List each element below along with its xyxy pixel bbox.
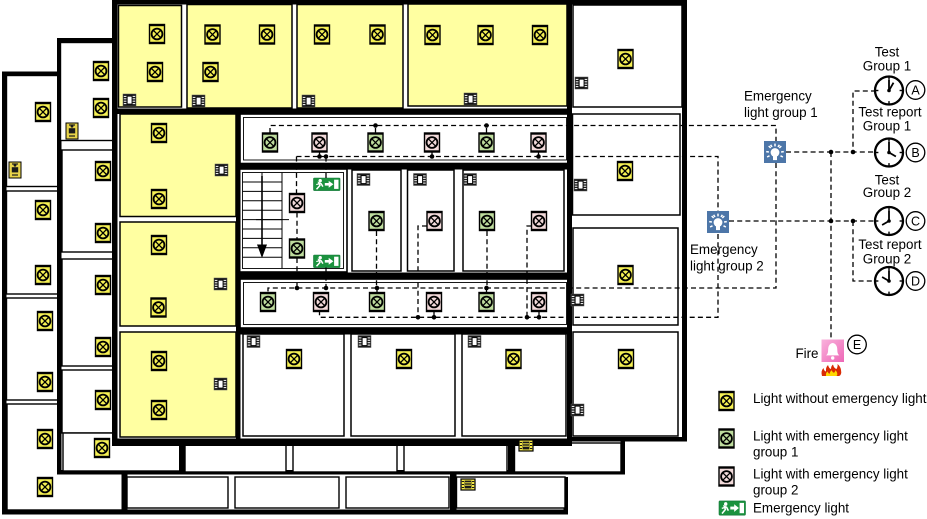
svg-text:Emergency light: Emergency light xyxy=(753,501,849,516)
svg-text:A: A xyxy=(911,84,920,98)
svg-text:Test: Test xyxy=(875,45,900,60)
svg-text:Test report: Test report xyxy=(858,237,922,252)
svg-text:C: C xyxy=(911,215,920,229)
svg-text:Group 1: Group 1 xyxy=(863,119,911,134)
svg-text:group 2: group 2 xyxy=(753,483,798,498)
svg-text:Emergency: Emergency xyxy=(744,89,812,104)
svg-text:light group 1: light group 1 xyxy=(744,105,818,120)
svg-text:group 1: group 1 xyxy=(753,445,798,460)
svg-text:Group 2: Group 2 xyxy=(863,252,911,267)
svg-text:Light with emergency light: Light with emergency light xyxy=(753,429,908,444)
svg-text:Emergency: Emergency xyxy=(690,242,758,257)
svg-text:E: E xyxy=(853,338,861,352)
svg-text:D: D xyxy=(911,275,920,289)
svg-text:Light with emergency light: Light with emergency light xyxy=(753,467,908,482)
svg-text:Light without emergency light: Light without emergency light xyxy=(753,391,927,406)
svg-text:Group 1: Group 1 xyxy=(863,59,911,74)
svg-text:Test report: Test report xyxy=(858,105,922,120)
svg-text:Group 2: Group 2 xyxy=(863,185,911,200)
svg-text:light group 2: light group 2 xyxy=(690,259,764,274)
svg-text:Fire: Fire xyxy=(795,346,818,361)
svg-text:B: B xyxy=(911,146,919,160)
